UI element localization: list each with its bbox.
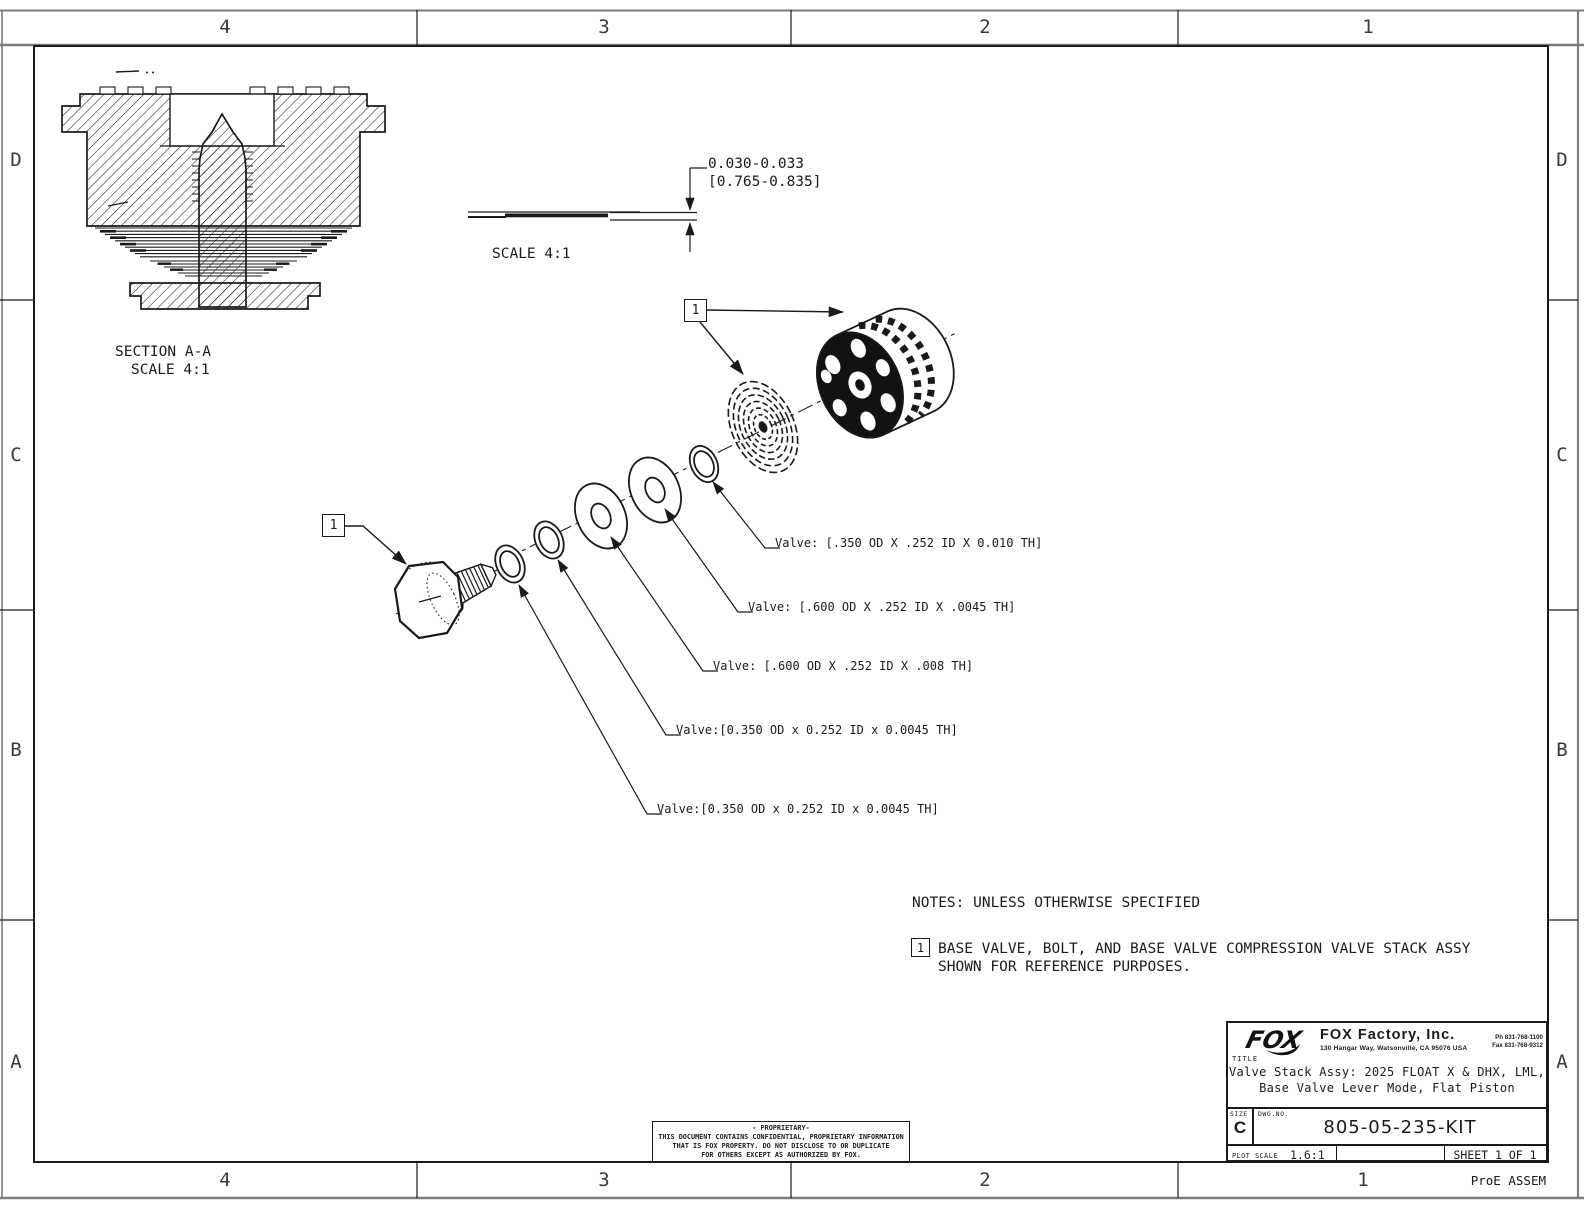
zone-left-b: B [7, 739, 25, 761]
size-value: C [1228, 1118, 1252, 1138]
base-valve-piston [801, 295, 971, 452]
title-block-dwg-row: SIZE C DWG.NO. 805-05-235-KIT [1228, 1107, 1546, 1144]
size-label: SIZE [1230, 1110, 1248, 1118]
company-address: 130 Hangar Way, Watsonville, CA 95076 US… [1320, 1045, 1467, 1052]
zone-top-1: 1 [1362, 17, 1373, 37]
zone-top-2: 2 [979, 17, 990, 37]
zone-left-c: C [7, 444, 25, 466]
valve-label-2: Valve: [.600 OD X .252 ID X .0045 TH] [748, 601, 1015, 614]
zone-bottom-3: 3 [598, 1170, 609, 1190]
valve-label-3: Valve: [.600 OD X .252 ID X .008 TH] [713, 660, 973, 673]
company-name: FOX Factory, Inc. [1320, 1027, 1455, 1043]
zone-left-a: A [7, 1051, 25, 1073]
zone-top-3: 3 [598, 17, 609, 37]
flag-note-1-bolt: 1 [322, 514, 345, 537]
valve-label-4: Valve:[0.350 OD x 0.252 ID x 0.0045 TH] [676, 724, 958, 737]
zone-left-d: D [7, 149, 25, 171]
proe-assem-label: ProE ASSEM [1420, 1173, 1546, 1188]
company-phone: Ph 831-768-1100 [1492, 1034, 1543, 1042]
plot-scale-label: PLOT SCALE [1232, 1152, 1278, 1160]
proprietary-line4: FOR OTHERS EXCEPT AS AUTHORIZED BY FOX. [653, 1151, 909, 1160]
drawing-title-line1: Valve Stack Assy: 2025 FLOAT X & DHX, LM… [1228, 1065, 1546, 1079]
valve-label-1: Valve: [.350 OD X .252 ID X 0.010 TH] [775, 537, 1042, 550]
title-block: FOX FOX Factory, Inc. 130 Hangar Way, Wa… [1226, 1021, 1548, 1162]
detail-dimension-line1: 0.030-0.033 [708, 156, 804, 172]
section-scale: SCALE 4:1 [131, 362, 210, 378]
valve-shim-washers [490, 441, 724, 587]
detail-view [468, 168, 707, 252]
sheet-number: SHEET 1 OF 1 [1444, 1148, 1546, 1162]
proprietary-line2: THIS DOCUMENT CONTAINS CONFIDENTIAL, PRO… [653, 1133, 909, 1142]
zone-bottom-1: 1 [1357, 1170, 1368, 1190]
detail-dimension-line2: [0.765-0.835] [708, 174, 822, 190]
detail-scale: SCALE 4:1 [492, 246, 571, 262]
company-phones: Ph 831-768-1100 Fax 831-768-9312 [1492, 1034, 1543, 1049]
drawing-title-line2: Base Valve Lever Mode, Flat Piston [1228, 1081, 1546, 1095]
company-fax: Fax 831-768-9312 [1492, 1042, 1543, 1050]
flag-note-1-notes: 1 [911, 938, 930, 957]
dwg-number: 805-05-235-KIT [1254, 1117, 1546, 1138]
flag-note-1-piston: 1 [684, 299, 707, 322]
valve-label-5: Valve:[0.350 OD x 0.252 ID x 0.0045 TH] [657, 803, 939, 816]
zone-right-b: B [1553, 739, 1571, 761]
proprietary-line1: - PROPRIETARY- [653, 1124, 909, 1133]
notes-line2: SHOWN FOR REFERENCE PURPOSES. [938, 959, 1191, 975]
zone-bottom-2: 2 [979, 1170, 990, 1190]
notes-line1: BASE VALVE, BOLT, AND BASE VALVE COMPRES… [938, 941, 1471, 957]
title-block-header: FOX FOX Factory, Inc. 130 Hangar Way, Wa… [1228, 1023, 1546, 1107]
title-block-bottom-row: PLOT SCALE 1.6:1 SHEET 1 OF 1 [1228, 1144, 1546, 1162]
proprietary-notice: - PROPRIETARY- THIS DOCUMENT CONTAINS CO… [652, 1121, 910, 1162]
zone-bottom-4: 4 [219, 1170, 230, 1190]
zone-right-a: A [1553, 1051, 1571, 1073]
proprietary-line3: THAT IS FOX PROPERTY. DO NOT DISCLOSE TO… [653, 1142, 909, 1151]
plot-scale-value: 1.6:1 [1290, 1148, 1325, 1162]
drawing-sheet: 4 3 2 1 4 3 2 1 D C B A D C B A ProE ASS… [0, 0, 1584, 1224]
section-caption: SECTION A-A [115, 344, 211, 360]
bottom-row-divider-1 [1336, 1146, 1337, 1162]
base-valve-bolt [395, 553, 508, 638]
zone-right-c: C [1553, 444, 1571, 466]
title-label: TITLE [1232, 1055, 1258, 1063]
size-cell: SIZE C [1228, 1109, 1254, 1144]
zone-right-d: D [1553, 149, 1571, 171]
section-a-a-view [62, 71, 385, 309]
compression-valve-stack [715, 370, 812, 483]
zone-top-4: 4 [219, 17, 230, 37]
notes-header: NOTES: UNLESS OTHERWISE SPECIFIED [912, 895, 1200, 911]
